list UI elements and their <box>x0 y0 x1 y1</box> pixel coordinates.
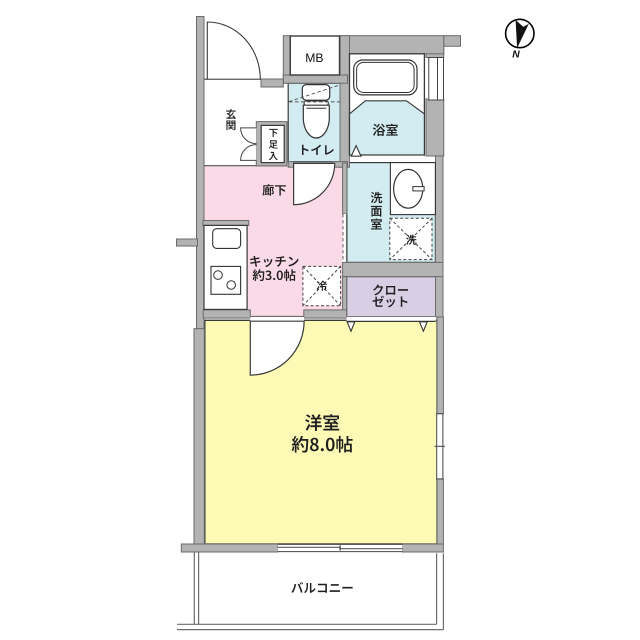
svg-text:N: N <box>512 50 520 61</box>
svg-text:MB: MB <box>305 51 323 65</box>
